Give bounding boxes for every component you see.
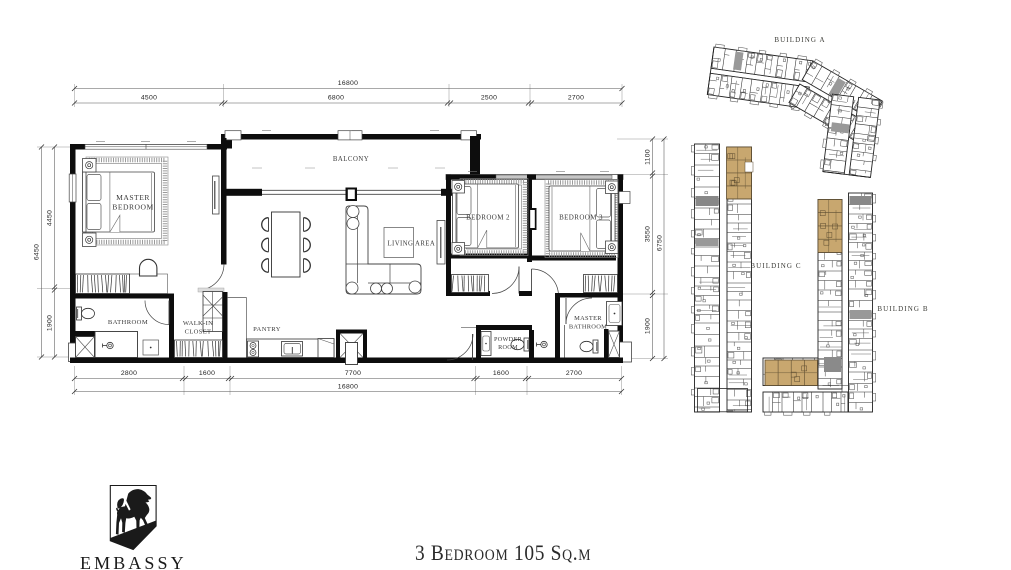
svg-text:BEDROOM 3: BEDROOM 3 — [559, 214, 603, 222]
svg-text:6800: 6800 — [328, 95, 344, 102]
svg-text:EMBASSY: EMBASSY — [80, 553, 187, 570]
svg-text:1600: 1600 — [199, 370, 215, 377]
svg-text:BATHROOM: BATHROOM — [569, 324, 607, 331]
svg-text:7700: 7700 — [345, 370, 361, 377]
svg-text:16800: 16800 — [338, 384, 358, 391]
svg-text:BUILDING C: BUILDING C — [750, 262, 801, 270]
svg-text:1900: 1900 — [47, 315, 54, 331]
svg-text:MASTER: MASTER — [574, 315, 602, 322]
svg-text:PANTRY: PANTRY — [253, 326, 281, 333]
svg-text:POWDER: POWDER — [494, 336, 522, 343]
svg-text:2700: 2700 — [566, 370, 582, 377]
svg-text:BUILDING A: BUILDING A — [774, 36, 825, 44]
svg-text:4500: 4500 — [141, 95, 157, 102]
svg-text:1900: 1900 — [645, 318, 652, 334]
svg-text:BATHROOM: BATHROOM — [108, 319, 148, 326]
svg-text:LIVING AREA: LIVING AREA — [388, 241, 436, 248]
svg-text:MASTER: MASTER — [116, 193, 150, 202]
svg-text:2500: 2500 — [481, 95, 497, 102]
svg-text:BEDROOM 2: BEDROOM 2 — [466, 214, 510, 222]
svg-text:4450: 4450 — [47, 210, 54, 226]
svg-text:3550: 3550 — [645, 226, 652, 242]
svg-text:ROOM: ROOM — [498, 344, 518, 351]
svg-text:2700: 2700 — [568, 95, 584, 102]
svg-text:CLOSET: CLOSET — [185, 329, 212, 336]
svg-text:16800: 16800 — [338, 80, 358, 87]
svg-text:BEDROOM: BEDROOM — [112, 203, 153, 212]
svg-text:BALCONY: BALCONY — [333, 156, 369, 163]
svg-text:WALK-IN: WALK-IN — [183, 320, 213, 327]
svg-text:6450: 6450 — [34, 244, 41, 260]
svg-text:6750: 6750 — [657, 235, 664, 251]
svg-text:1100: 1100 — [645, 149, 652, 165]
svg-text:1600: 1600 — [493, 370, 509, 377]
svg-text:2800: 2800 — [121, 370, 137, 377]
svg-text:BUILDING B: BUILDING B — [877, 305, 928, 313]
